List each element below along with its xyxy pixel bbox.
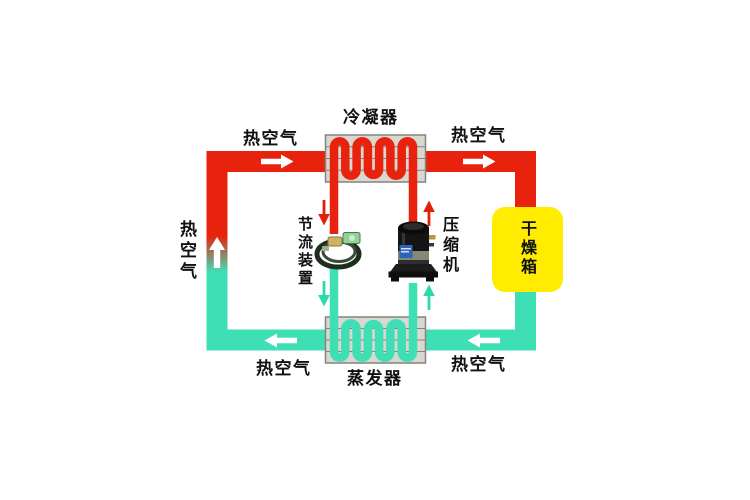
hot-air-label-top-left: 热空气 <box>243 131 299 148</box>
evaporator-label: 蒸发器 <box>347 371 403 388</box>
hot-air-label-left-side: 热空气 <box>177 220 194 283</box>
condenser-label: 冷凝器 <box>343 110 399 127</box>
hot-air-label-bottom-right: 热空气 <box>451 357 507 374</box>
compressor-image <box>389 222 439 282</box>
throttle-device-label: 节流装置 <box>297 216 312 288</box>
refrigerant-arrow-down-cold-icon <box>318 281 330 307</box>
diagram-graphics <box>0 0 750 500</box>
hot-air-label-top-right: 热空气 <box>451 128 507 145</box>
heat-pump-drying-diagram: 冷凝器 蒸发器 热空气 热空气 热空气 热空气 热空气 节流装置 压缩机 干燥箱 <box>0 0 750 500</box>
refrigerant-arrow-down-hot-icon <box>318 200 330 226</box>
refrigerant-arrow-up-hot-icon <box>423 201 435 227</box>
refrigerant-arrow-up-cold-icon <box>423 285 435 311</box>
drying-box-label: 干燥箱 <box>519 220 535 277</box>
throttle-device-image <box>317 233 360 268</box>
hot-air-label-bottom-left: 热空气 <box>256 361 312 378</box>
compressor-label: 压缩机 <box>441 216 457 276</box>
